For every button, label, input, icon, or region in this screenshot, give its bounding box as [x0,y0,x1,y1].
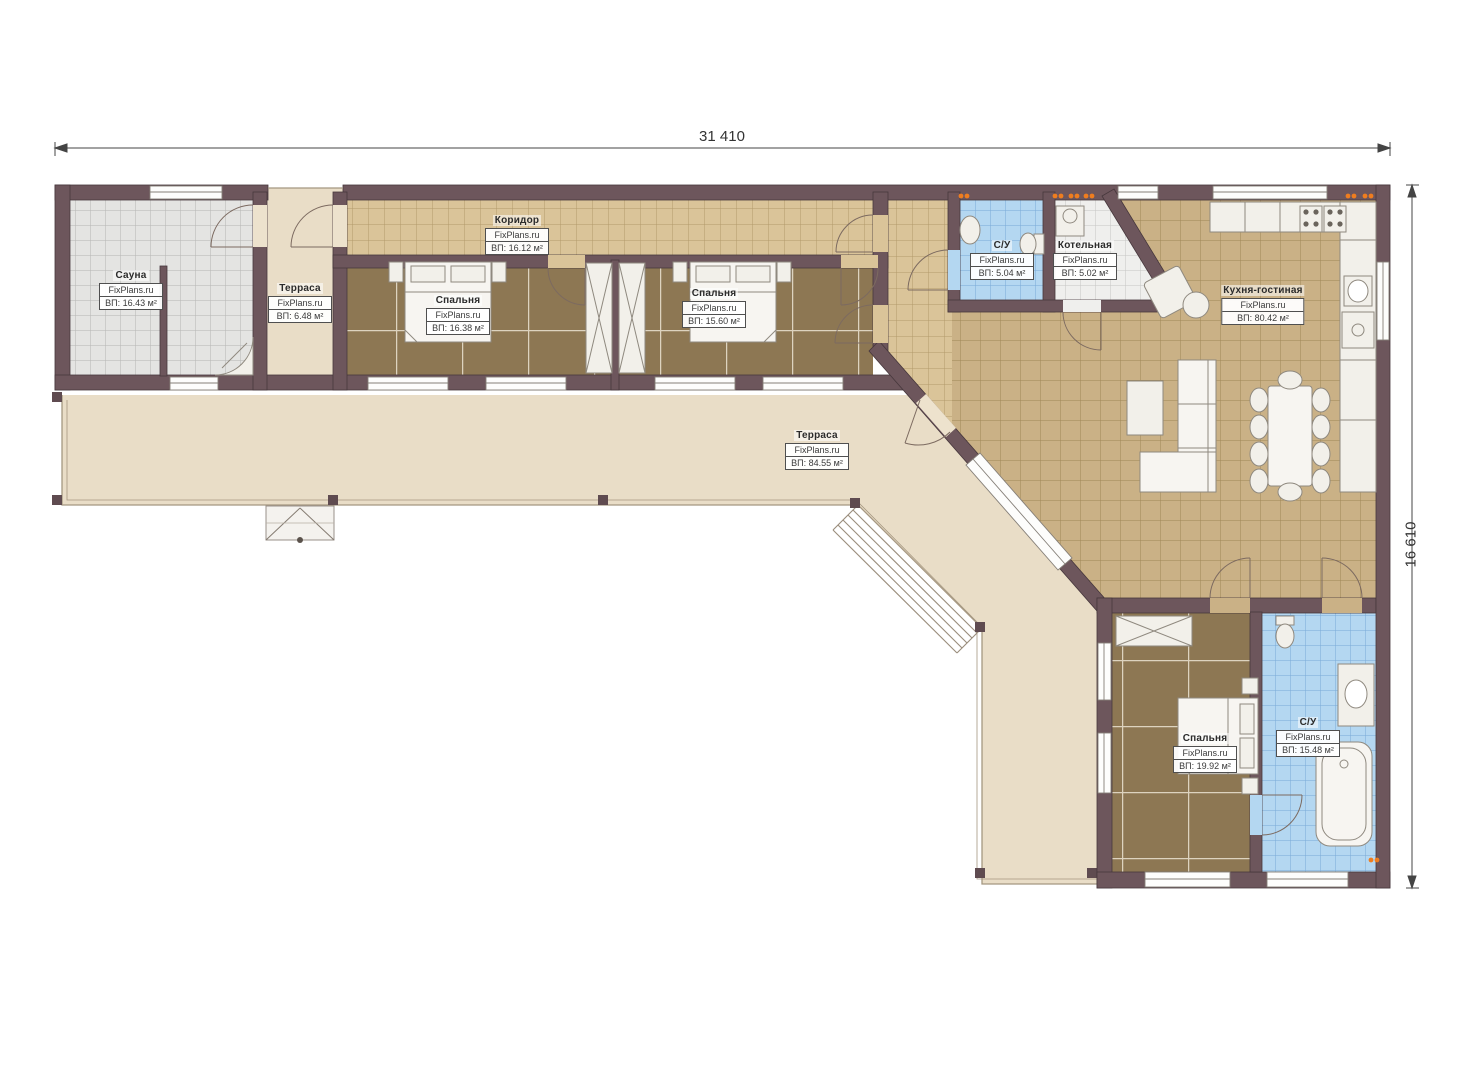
room-label-kitchen-living: Кухня-гостиная FixPlans.ru ВП: 80.42 м² [1221,280,1304,325]
side-table [1183,292,1209,318]
step-post [297,537,303,543]
room-label-terrace-big: Терраса FixPlans.ru ВП: 84.55 м² [785,425,849,470]
window [1267,872,1348,887]
watermark: FixPlans.ru [683,302,745,315]
watermark: FixPlans.ru [427,309,489,322]
window [368,377,448,390]
room-name: Терраса [794,430,840,441]
chair [1250,469,1268,493]
watermark: FixPlans.ru [1222,299,1303,312]
room-area: ВП: 5.04 м² [971,267,1033,279]
room-label-bedroom-3: Спальня FixPlans.ru ВП: 19.92 м² [1173,728,1237,773]
room-name: Котельная [1056,240,1114,251]
bathtub [1316,742,1372,846]
chair [1312,469,1330,493]
room-area: ВП: 6.48 м² [269,310,331,322]
window [1377,262,1389,340]
room-area: ВП: 5.02 м² [1054,267,1116,279]
watermark: FixPlans.ru [786,444,848,457]
room-area: ВП: 15.60 м² [683,315,745,327]
room-name: Терраса [277,283,323,294]
chair [1312,388,1330,412]
room-label-bedroom-2: Спальня FixPlans.ru ВП: 15.60 м² [682,283,746,328]
window [763,377,843,390]
room-area: ВП: 84.55 м² [786,457,848,469]
chair [1250,388,1268,412]
window [1118,186,1158,199]
room-label-bathroom-top: С/У FixPlans.ru ВП: 5.04 м² [970,235,1034,280]
kitchen-sink [1344,276,1372,306]
window [1145,872,1230,887]
watermark: FixPlans.ru [1174,747,1236,760]
wardrobe [1116,616,1192,646]
window [1098,643,1111,700]
window [1098,733,1111,793]
chair [1278,371,1302,389]
room-name: С/У [1298,717,1319,728]
room-name: Спальня [434,295,483,306]
watermark: FixPlans.ru [1054,254,1116,267]
room-label-terrace-small: Терраса FixPlans.ru ВП: 6.48 м² [268,278,332,323]
room-name: С/У [992,240,1013,251]
oven [1342,312,1374,348]
room-name: Спальня [1181,733,1230,744]
watermark: FixPlans.ru [971,254,1033,267]
room-label-sauna: Сауна FixPlans.ru ВП: 16.43 м² [99,265,163,310]
window [486,377,566,390]
room-area: ВП: 19.92 м² [1174,760,1236,772]
window [170,377,218,390]
room-area: ВП: 16.12 м² [486,242,548,254]
room-name: Кухня-гостиная [1221,285,1304,296]
room-name: Сауна [113,270,148,281]
corridor-floor [340,192,875,262]
chair [1250,442,1268,466]
toilet [1276,616,1294,648]
watermark: FixPlans.ru [100,284,162,297]
dining-table [1250,371,1330,501]
terrace-big-floor [62,395,1097,884]
chair [1278,483,1302,501]
wardrobe [586,263,612,373]
watermark: FixPlans.ru [269,297,331,310]
floor-plan-canvas: Сауна FixPlans.ru ВП: 16.43 м² Терраса F… [0,0,1474,1080]
vanity-sink [1338,664,1374,726]
wardrobe [619,263,645,373]
dimension-width-label: 31 410 [699,128,745,145]
room-area: ВП: 80.42 м² [1222,312,1303,324]
room-area: ВП: 16.43 м² [100,297,162,309]
chair [1312,442,1330,466]
room-name: Коридор [493,215,541,226]
window [150,186,222,199]
room-label-boiler: Котельная FixPlans.ru ВП: 5.02 м² [1053,235,1117,280]
room-name: Спальня [690,288,739,299]
room-area: ВП: 16.38 м² [427,322,489,334]
watermark: FixPlans.ru [1277,731,1339,744]
chair [1312,415,1330,439]
room-label-bathroom-bottom: С/У FixPlans.ru ВП: 15.48 м² [1276,712,1340,757]
terrace-entry-steps [266,506,334,543]
floor-plan-drawing [0,0,1474,1080]
boiler-unit [1056,206,1084,236]
window [655,377,735,390]
room-label-bedroom-1: Спальня FixPlans.ru ВП: 16.38 м² [426,290,490,335]
window [1213,186,1327,199]
watermark: FixPlans.ru [486,229,548,242]
chair [1250,415,1268,439]
room-area: ВП: 15.48 м² [1277,744,1339,756]
dimension-height-label: 16 610 [1402,522,1419,568]
tv-stand [1127,381,1163,435]
room-label-corridor: Коридор FixPlans.ru ВП: 16.12 м² [485,210,549,255]
